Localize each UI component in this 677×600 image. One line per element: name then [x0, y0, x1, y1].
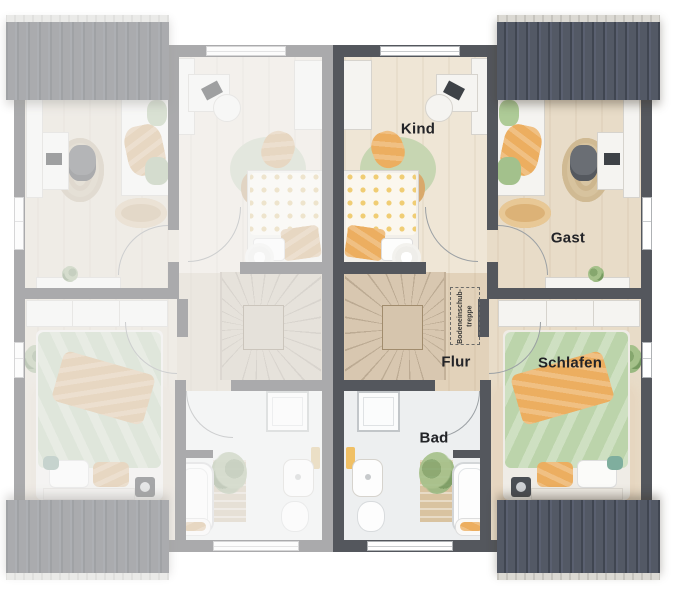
cushion-green-2-neighbor: [145, 157, 169, 185]
window-gast: [642, 197, 652, 250]
office-chair-gast-neighbor: [68, 145, 96, 181]
wall-bad-right-neighbor: [175, 380, 186, 545]
window-schlafen-neighbor: [14, 342, 24, 378]
attic-hatch-line2: treppe: [466, 305, 473, 326]
pet-bed: [499, 198, 551, 228]
wall-right-neighbor: [14, 95, 25, 505]
attic-hatch-label: Bodeneinschub- treppe: [456, 289, 475, 344]
window-bottom: [367, 541, 453, 551]
pillow-orange-neighbor: [93, 462, 129, 487]
wall-kind-gast-neighbor: [168, 57, 179, 230]
divider: [593, 301, 594, 326]
plant-icon: [588, 266, 604, 282]
sofa-gast: [495, 96, 545, 196]
roof-panel-top-neighbor: [6, 15, 169, 100]
stair-landing-neighbor: [243, 305, 284, 350]
sink-neighbor: [283, 459, 314, 497]
roof-ridge: [497, 15, 660, 22]
wall-flur-schlafen-neighbor: [177, 299, 188, 337]
blanket-kind: [344, 225, 386, 262]
chair-kind: [425, 94, 453, 122]
sink: [352, 459, 383, 497]
chair-kind-neighbor: [213, 94, 241, 122]
nightstand-speaker-neighbor: [135, 477, 155, 497]
towel-icon-neighbor: [183, 522, 206, 531]
room-label-gast: Gast: [551, 230, 585, 247]
laptop-icon-neighbor: [46, 153, 62, 165]
attic-hatch-line1: Bodeneinschub-: [457, 289, 464, 344]
window-schlafen: [642, 342, 652, 378]
window-top: [380, 46, 460, 56]
toilet: [357, 501, 385, 532]
shower-neighbor: [266, 391, 309, 432]
shower: [357, 391, 400, 432]
staircase-neighbor: [220, 272, 321, 380]
bed-bench-neighbor: [43, 488, 135, 500]
toilet-neighbor: [281, 501, 309, 532]
nightstand-speaker: [511, 477, 531, 497]
wall-kind-bottom: [340, 262, 426, 274]
laptop-icon: [604, 153, 620, 165]
shelf-gast-neighbor: [26, 98, 43, 198]
wall-gast-schlafen: [487, 288, 652, 299]
cushion-green-neighbor: [147, 100, 167, 126]
plant-icon-neighbor: [62, 266, 78, 282]
unit-main: Kind Gast Flur Schlafen Bad Bodeneinschu…: [333, 0, 660, 600]
room-label-bad: Bad: [420, 430, 449, 447]
wall-right: [641, 95, 652, 505]
blanket-kind-neighbor: [280, 225, 322, 262]
divider-neighbor: [119, 301, 120, 326]
wall-bad-right: [480, 380, 491, 545]
stair-landing: [382, 305, 423, 350]
cushion-green-2: [497, 157, 521, 185]
divider-neighbor: [72, 301, 73, 326]
cushion-teal-neighbor: [43, 456, 59, 470]
divider: [546, 301, 547, 326]
wall-gast-schlafen-neighbor: [14, 288, 179, 299]
window-top-neighbor: [206, 46, 286, 56]
faucet-icon-neighbor: [295, 474, 301, 480]
plant-icon: [419, 452, 455, 494]
party-wall-neighbor: [322, 45, 333, 550]
window-bottom-neighbor: [213, 541, 299, 551]
faucet-icon: [365, 474, 371, 480]
sofa-gast-neighbor: [121, 96, 171, 196]
staircase: [345, 272, 446, 380]
pet-bed-neighbor: [115, 198, 167, 228]
desk-gast-neighbor: [39, 132, 69, 190]
wall-bad-stub-neighbor: [175, 450, 213, 458]
office-chair-gast: [570, 145, 598, 181]
party-wall: [333, 45, 344, 550]
roof-panel-bottom: [497, 500, 660, 580]
roof-ridge-neighbor: [6, 15, 169, 22]
unit-neighbor: [6, 0, 333, 600]
shower-tray: [363, 397, 394, 426]
cushion-green: [499, 100, 519, 126]
roof-panel-bottom-neighbor: [6, 500, 169, 580]
roof-gutter: [497, 573, 660, 580]
speaker-icon-neighbor: [140, 482, 150, 492]
wall-bad-stub: [453, 450, 491, 458]
pillow-orange: [537, 462, 573, 487]
roof-panel-top: [497, 15, 660, 100]
attic-hatch-box: Bodeneinschub- treppe: [450, 287, 480, 345]
plant-icon-neighbor: [211, 452, 247, 494]
window-gast-neighbor: [14, 197, 24, 250]
floor-plan: Kind Gast Flur Schlafen Bad Bodeneinschu…: [0, 0, 677, 600]
shower-tray-neighbor: [272, 397, 303, 426]
roof-gutter-neighbor: [6, 573, 169, 580]
room-label-kind: Kind: [401, 121, 435, 138]
room-label-flur: Flur: [441, 354, 470, 371]
shelf-gast: [623, 98, 640, 198]
room-label-schlafen: Schlafen: [538, 355, 602, 372]
wardrobe-kind-left-neighbor: [294, 60, 324, 130]
wardrobe-kind-left: [342, 60, 372, 130]
speaker-icon: [516, 482, 526, 492]
wall-bad-top: [344, 380, 435, 391]
cushion-teal: [607, 456, 623, 470]
wall-bad-top-neighbor: [231, 380, 322, 391]
wall-kind-bottom-neighbor: [240, 262, 326, 274]
bed-bench: [531, 488, 623, 500]
